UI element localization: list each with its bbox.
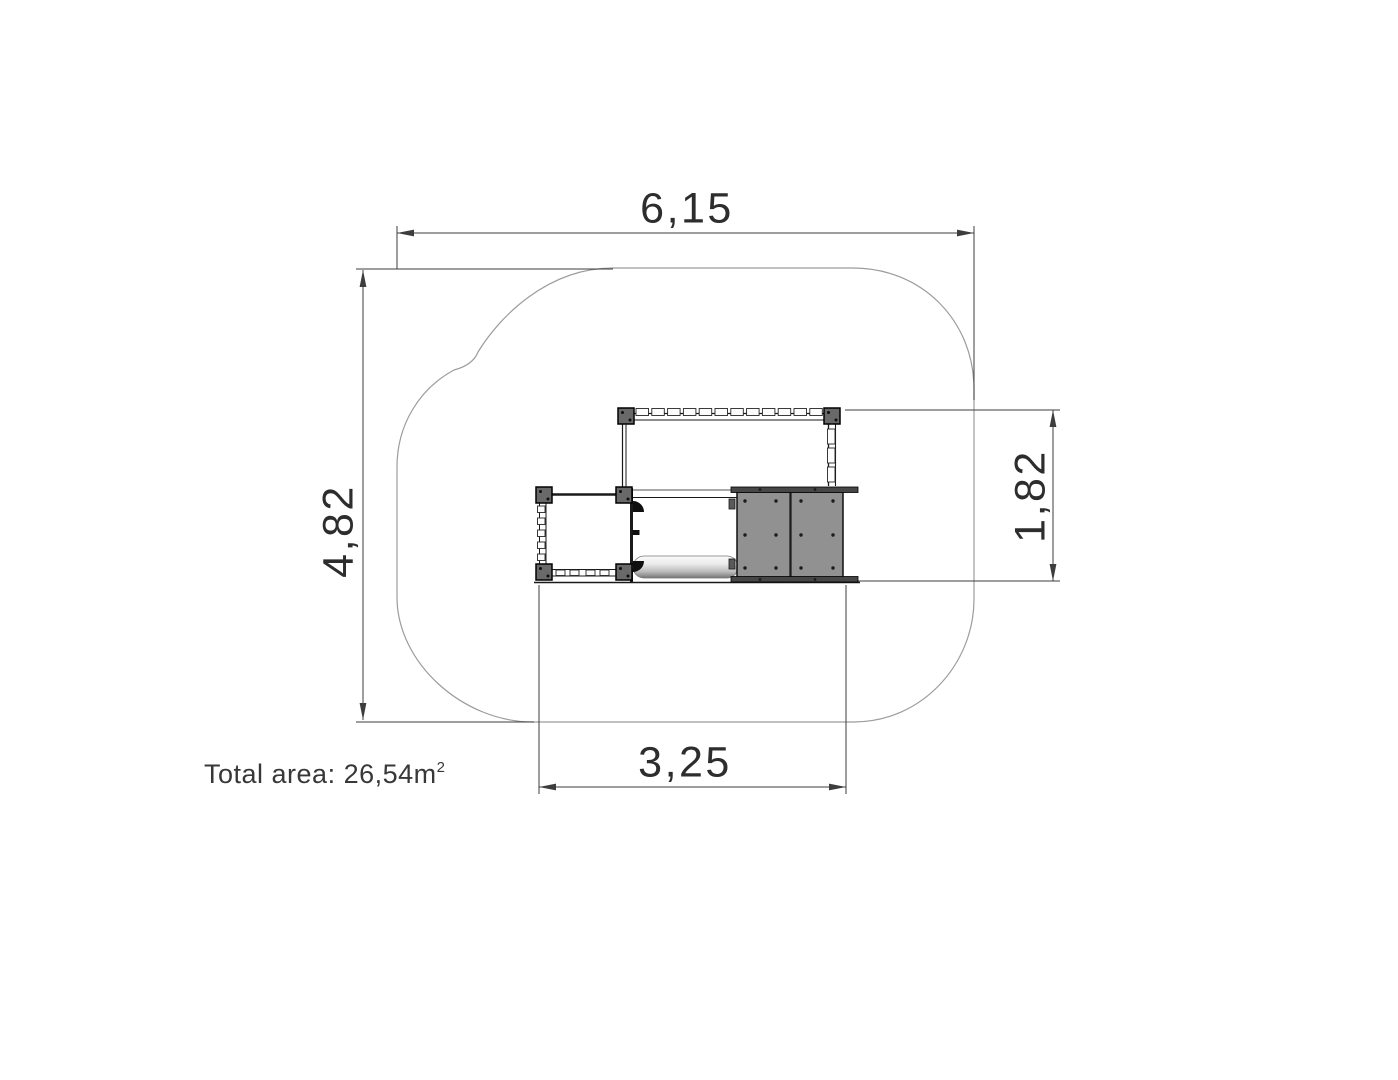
tower-panels — [729, 487, 858, 582]
dimension-total-width — [397, 226, 974, 400]
total-area-label: Total area: — [204, 759, 344, 789]
safety-zone-outline — [397, 268, 974, 722]
dimension-label-total-height: 4,82 — [318, 484, 361, 578]
playground-unit — [534, 408, 860, 583]
fence-top-rail — [634, 409, 824, 421]
fence-right-rail — [828, 424, 836, 486]
total-area-note: Total area: 26,54m2 — [204, 759, 445, 790]
drawing-canvas: 6,15 4,82 1,82 3,25 Total area: 26,54m2 — [0, 0, 1398, 1080]
dimension-label-unit-width: 3,25 — [638, 742, 732, 785]
wall-brackets — [633, 501, 645, 572]
dimension-label-unit-height: 1,82 — [1010, 449, 1053, 543]
total-area-exponent: 2 — [437, 759, 446, 776]
dimension-label-total-width: 6,15 — [640, 188, 734, 231]
slide — [633, 556, 738, 578]
total-area-value: 26,54m — [344, 759, 437, 789]
plan-drawing — [0, 0, 1398, 1080]
